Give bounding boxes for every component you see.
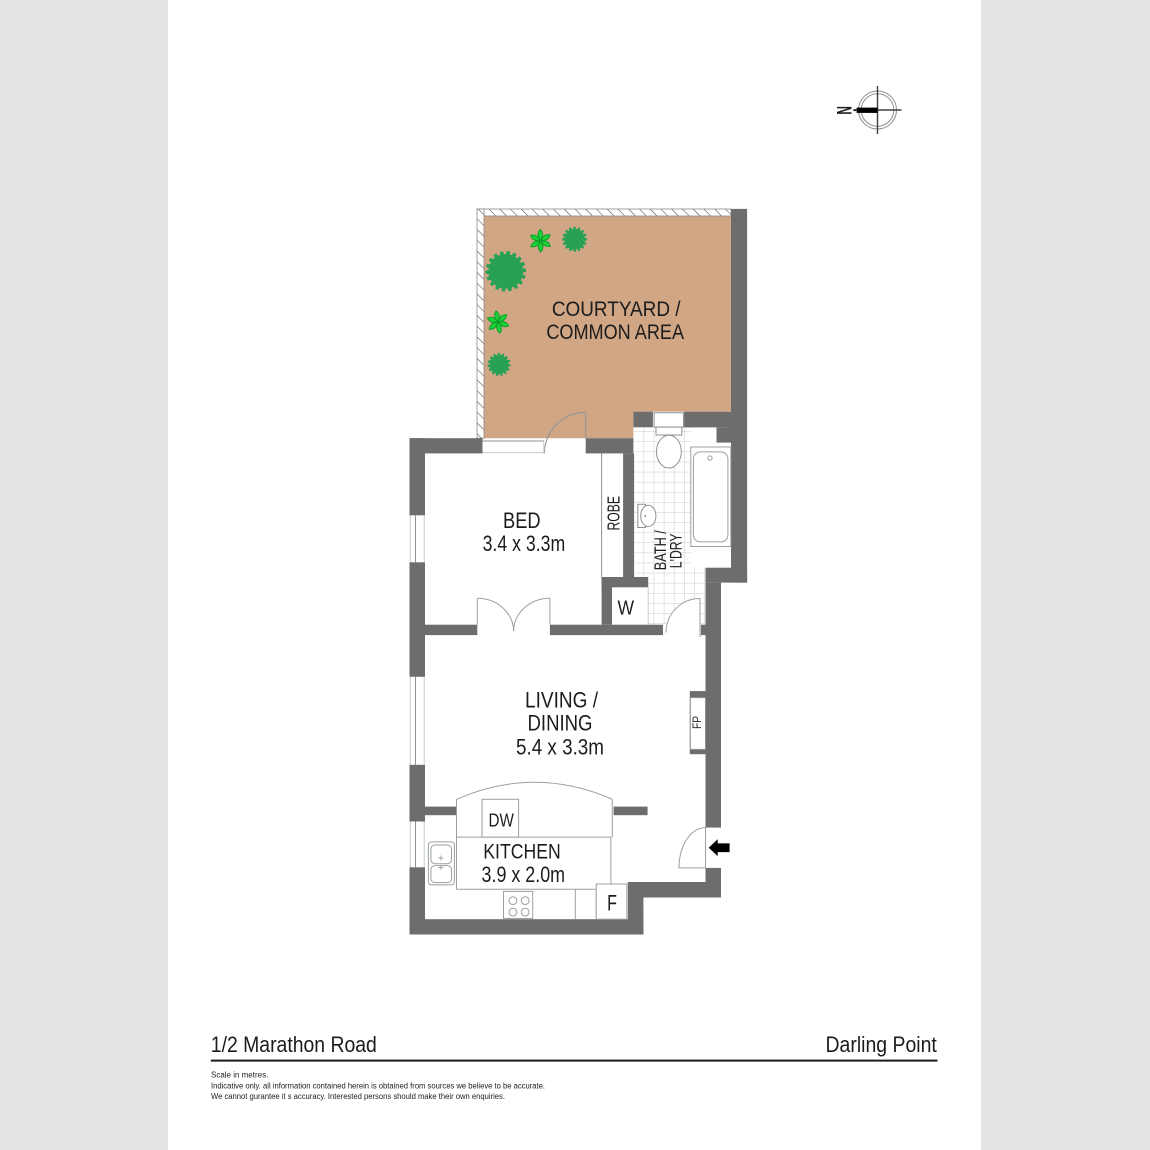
svg-text:Indicative only. all informati: Indicative only. all information contain… bbox=[211, 1082, 545, 1091]
svg-text:COMMON AREA: COMMON AREA bbox=[546, 321, 684, 344]
svg-text:N: N bbox=[834, 106, 857, 115]
svg-text:3.9 x 2.0m: 3.9 x 2.0m bbox=[482, 862, 566, 887]
svg-text:We cannot gurantee it s accura: We cannot gurantee it s accuracy. Intere… bbox=[211, 1092, 505, 1101]
svg-text:COURTYARD /: COURTYARD / bbox=[552, 298, 681, 321]
svg-text:KITCHEN: KITCHEN bbox=[483, 839, 560, 863]
svg-text:Scale in metres.: Scale in metres. bbox=[211, 1071, 268, 1080]
svg-text:5.4 x 3.3m: 5.4 x 3.3m bbox=[516, 734, 604, 759]
svg-text:FP: FP bbox=[690, 716, 704, 729]
svg-text:F: F bbox=[607, 891, 617, 916]
svg-text:W: W bbox=[617, 596, 634, 619]
svg-text:Darling Point: Darling Point bbox=[826, 1032, 938, 1057]
svg-text:BED: BED bbox=[503, 508, 541, 533]
svg-text:DW: DW bbox=[489, 809, 515, 830]
svg-text:DINING: DINING bbox=[528, 711, 593, 736]
svg-text:LIVING /: LIVING / bbox=[525, 688, 599, 713]
svg-text:3.4 x 3.3m: 3.4 x 3.3m bbox=[483, 531, 566, 556]
svg-text:L'DRY: L'DRY bbox=[667, 533, 685, 568]
svg-text:ROBE: ROBE bbox=[603, 496, 623, 531]
svg-text:1/2 Marathon Road: 1/2 Marathon Road bbox=[211, 1032, 377, 1057]
